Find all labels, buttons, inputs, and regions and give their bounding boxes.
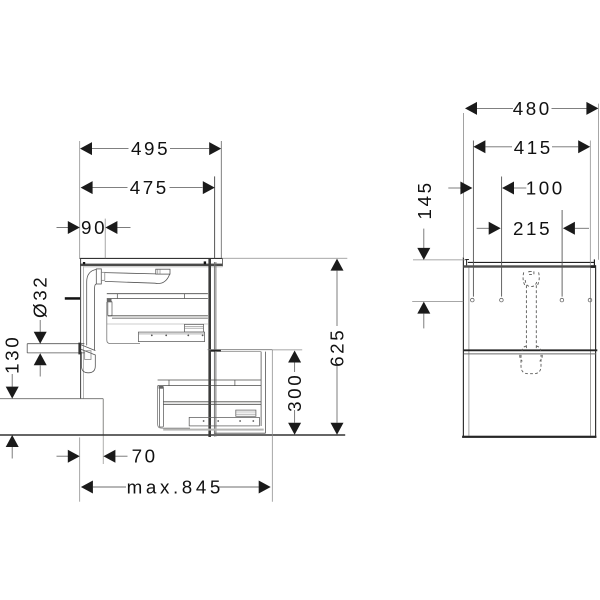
svg-text:215: 215 <box>513 218 552 239</box>
svg-text:625: 625 <box>327 328 348 367</box>
svg-text:100: 100 <box>526 178 565 199</box>
svg-text:475: 475 <box>130 177 169 198</box>
svg-text:90: 90 <box>81 217 107 238</box>
svg-text:480: 480 <box>513 98 552 119</box>
svg-text:495: 495 <box>131 138 170 159</box>
svg-text:Ø32: Ø32 <box>30 275 51 318</box>
svg-text:145: 145 <box>414 180 435 219</box>
svg-text:300: 300 <box>284 373 305 412</box>
svg-text:70: 70 <box>132 446 158 467</box>
svg-text:415: 415 <box>514 137 553 158</box>
svg-text:max.845: max.845 <box>127 477 224 498</box>
svg-text:130: 130 <box>2 335 23 374</box>
